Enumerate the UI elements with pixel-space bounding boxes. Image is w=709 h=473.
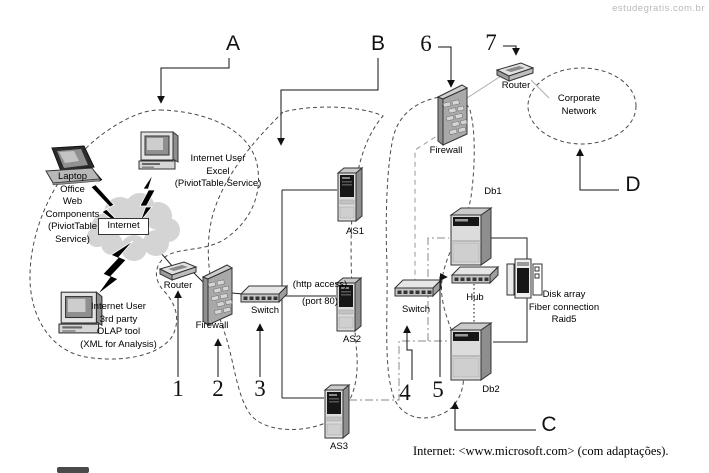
db2-label: Db2	[474, 384, 508, 397]
hub-label: Hub	[456, 292, 494, 305]
db1-server-icon	[451, 208, 491, 265]
firewall-back-icon	[438, 85, 469, 145]
callout-number-5: 5	[423, 377, 453, 403]
corporate-network-label: Corporate Network	[537, 93, 621, 118]
db1-label: Db1	[476, 186, 510, 199]
internet-cloud-label: Internet	[98, 218, 149, 235]
callout-letter-a: A	[217, 32, 249, 56]
disk-array-label: Disk array Fiber connection Raid5	[516, 289, 612, 327]
router-corp-icon	[497, 63, 533, 81]
db2-server-icon	[451, 323, 491, 380]
watermark: estudegratis.com.br	[540, 3, 705, 14]
callout-number-7: 7	[476, 30, 506, 56]
callout-line-a	[161, 58, 229, 103]
olap-user-label: Internet User 3rd party OLAP tool (XML f…	[56, 301, 181, 351]
as2-label: AS2	[336, 334, 368, 347]
firewall-front-icon	[203, 265, 234, 325]
switch-back-icon	[395, 280, 441, 296]
switch-front-icon	[241, 286, 287, 302]
router-corp-label: Router	[489, 80, 543, 93]
router-edge-label: Router	[150, 280, 206, 293]
callout-number-4: 4	[390, 380, 420, 406]
callout-number-3: 3	[245, 376, 275, 402]
callout-letter-d: D	[617, 173, 649, 197]
http-access-label: (http access)	[283, 279, 357, 292]
callout-number-6: 6	[411, 31, 441, 57]
callout-line-d	[580, 149, 619, 190]
source-caption: Internet: <www.microsoft.com> (com adapt…	[413, 444, 669, 459]
port-80-label: (port 80)	[283, 296, 357, 309]
as3-label: AS3	[323, 441, 355, 454]
firewall-front-label: Firewall	[184, 320, 240, 333]
as3-server-icon	[325, 385, 349, 438]
callout-line-5	[440, 277, 447, 377]
callout-number-1: 1	[163, 376, 193, 402]
hub-icon	[452, 267, 498, 283]
firewall-back-label: Firewall	[417, 145, 475, 158]
callout-letter-b: B	[362, 32, 394, 56]
callout-letter-c: C	[533, 413, 565, 437]
callout-line-4	[407, 326, 412, 380]
excel-user-label: Internet User Excel (PiviotTable Service…	[157, 153, 279, 191]
callout-line-c	[455, 402, 536, 430]
switch-back-label: Switch	[387, 304, 445, 317]
as1-label: AS1	[339, 226, 371, 239]
bottom-edge-artifact	[57, 467, 89, 473]
callout-line-b	[281, 58, 378, 145]
callout-number-2: 2	[203, 376, 233, 402]
router-edge-icon	[160, 262, 196, 280]
network-diagram: estudegratis.com.br Laptop Office Web Co…	[0, 0, 709, 473]
as1-server-icon	[338, 168, 362, 221]
